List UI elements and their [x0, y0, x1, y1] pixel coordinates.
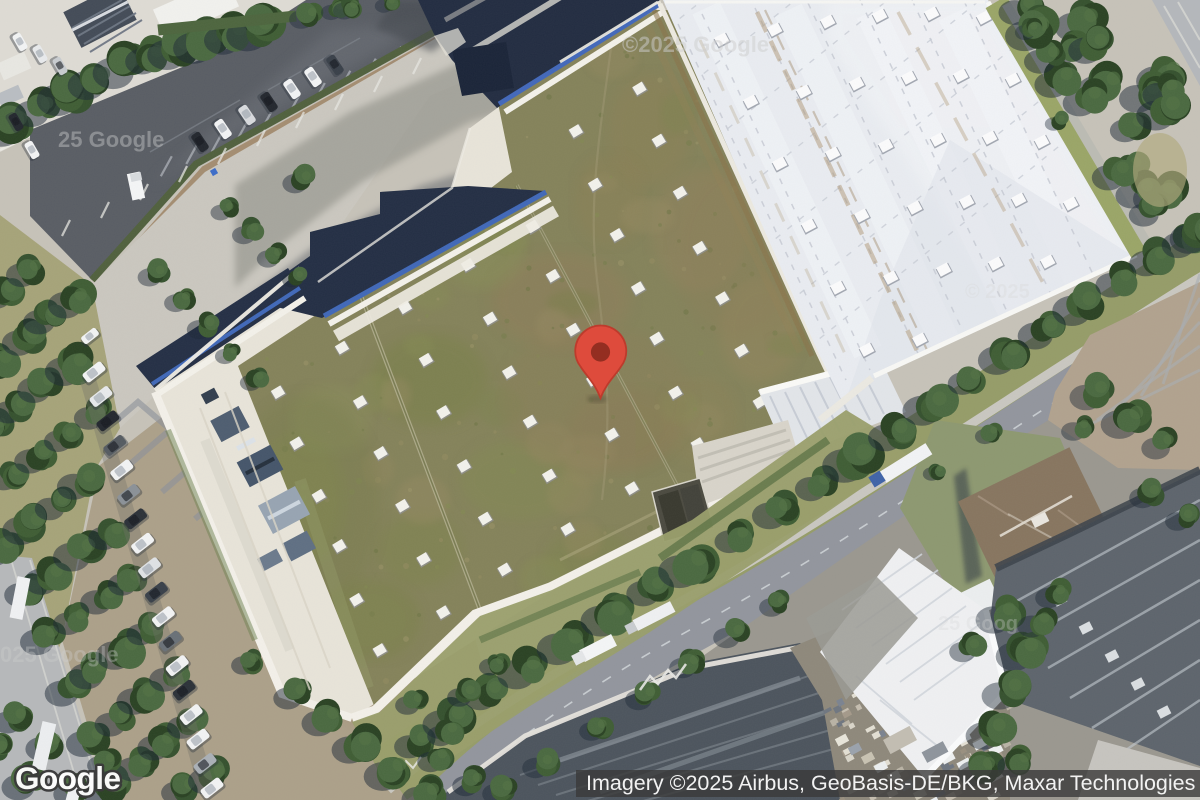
svg-text:Google: Google	[15, 760, 121, 796]
